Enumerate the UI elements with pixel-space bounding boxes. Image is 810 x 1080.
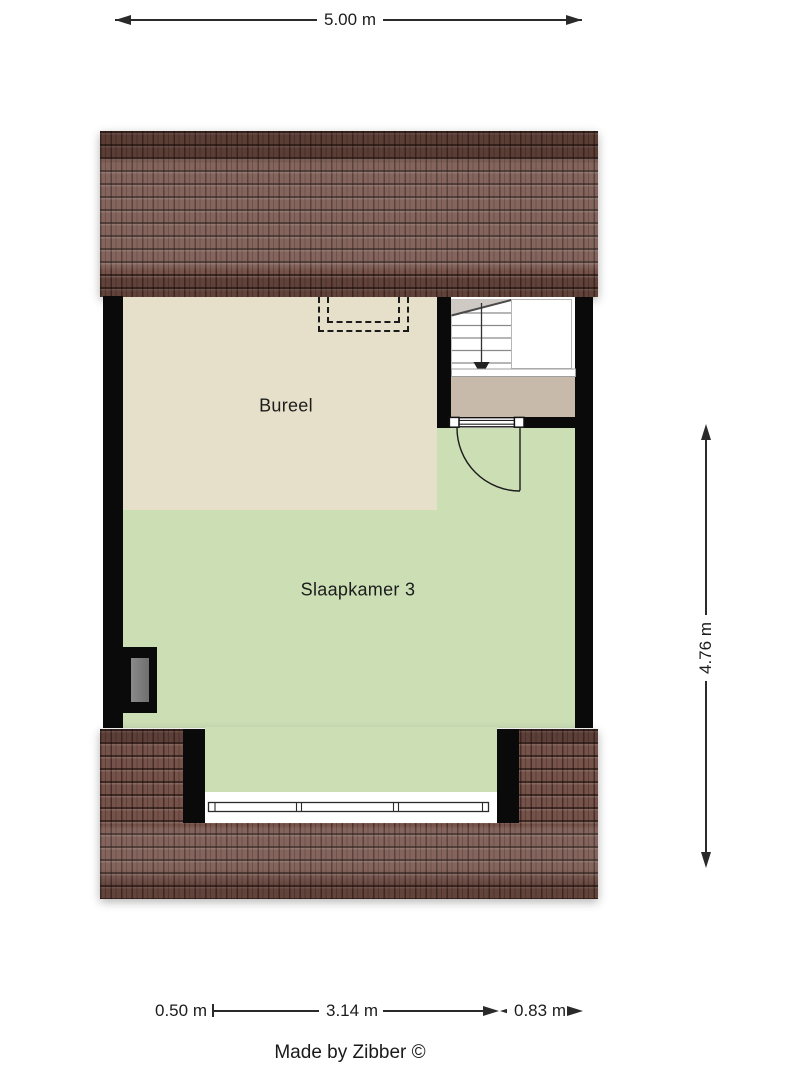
room-label-slaapkamer: Slaapkamer 3 [301, 580, 416, 601]
room-slaapkamer-floor-right [437, 428, 575, 510]
wall-interior-stairs [437, 297, 451, 428]
dimension-bottom-label-050: 0.50 m [148, 1001, 214, 1021]
credit-watermark: Made by Zibber © [274, 1042, 425, 1064]
wall-door-right [524, 417, 575, 428]
chimney-flue [131, 658, 149, 702]
landing-floor [451, 377, 575, 417]
arrowhead-right-icon-2 [483, 1006, 499, 1016]
wall-left [103, 296, 123, 728]
arrowhead-down-icon [701, 852, 711, 868]
arrowhead-up-icon [701, 424, 711, 440]
wall-right [575, 297, 593, 728]
arrowhead-left-icon [115, 15, 131, 25]
dormer-dashed-outline-inner [327, 297, 400, 323]
dimension-right-label: 4.76 m [696, 615, 716, 681]
roof-top [100, 131, 598, 297]
floorplan-page: 5.00 m [0, 0, 810, 1080]
dimension-top-label: 5.00 m [317, 10, 383, 30]
dimension-bottom-line-2 [383, 1010, 486, 1012]
door-post-right [514, 417, 524, 427]
room-slaapkamer-floor-main [123, 510, 575, 728]
stair-hall-floor [451, 297, 575, 377]
room-label-bureel: Bureel [259, 396, 313, 417]
room-slaapkamer-floor-bay [205, 727, 497, 792]
bay-wall-stub-left [183, 729, 205, 823]
dimension-bottom-line-1 [213, 1010, 321, 1012]
dimension-bottom-label-083: 0.83 m [507, 1001, 573, 1021]
roof-top-shading [100, 131, 598, 297]
arrowhead-right-icon [566, 15, 582, 25]
bay-wall-stub-right [497, 729, 519, 823]
window-band [205, 792, 497, 823]
dimension-bottom-label-314: 3.14 m [319, 1001, 385, 1021]
arrowhead-right-icon-3 [567, 1006, 583, 1016]
